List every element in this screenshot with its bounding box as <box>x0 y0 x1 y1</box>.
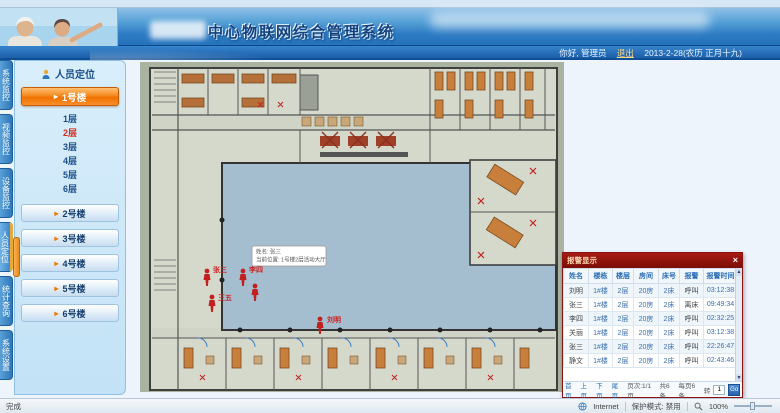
pager-next[interactable]: 下页 <box>596 380 609 400</box>
vtab-person-location[interactable]: 人员定位 <box>0 222 13 272</box>
table-row[interactable]: 李四1#楼2层20房2床呼叫02:32:25 <box>564 312 738 326</box>
page-title: 中心物联网综合管理系统 <box>208 21 395 42</box>
banner-highlight <box>430 12 710 28</box>
alarm-panel: 报警显示 × 姓名 楼栋 楼层 房间 床号 报警 报警时间 刘明1#楼2层20房… <box>562 252 743 398</box>
title-redacted-blur <box>150 21 206 39</box>
subbar-swoosh <box>90 46 310 60</box>
pager-first[interactable]: 首页 <box>565 380 578 400</box>
arrow-icon: ▸ <box>54 309 58 318</box>
floor-item-2-active[interactable]: 2层 <box>15 126 125 140</box>
pager-goto-label: 转 <box>704 385 711 395</box>
sidebar-panel: 人员定位 ▸ 1号楼 1层 2层 3层 4层 5层 6层 ▸2号楼 ▸3号楼 ▸… <box>14 60 126 395</box>
person-locate-icon <box>41 69 51 79</box>
table-row[interactable]: 静文1#楼2层20房2床呼叫02:43:46 <box>564 354 738 368</box>
table-row[interactable]: 关丽1#楼2层20房2床呼叫03:12:38 <box>564 326 738 340</box>
building-5-label: 5号楼 <box>63 282 86 295</box>
pager-last[interactable]: 尾页 <box>612 380 625 400</box>
col-building[interactable]: 楼栋 <box>589 269 613 284</box>
floor-item-1[interactable]: 1层 <box>15 112 125 126</box>
table-row[interactable]: 刘明1#楼2层20房2床呼叫03:12:38 <box>564 284 738 298</box>
scroll-up-icon[interactable]: ▲ <box>736 268 742 276</box>
building-5-button[interactable]: ▸5号楼 <box>21 279 119 297</box>
floor-list: 1层 2层 3层 4层 5层 6层 <box>15 112 125 196</box>
app-window: 中心物联网综合管理系统 你好, 管理员 退出 2013-2-28(农历 正月十九… <box>0 0 780 413</box>
arrow-icon: ▸ <box>54 259 58 268</box>
panel-title: 人员定位 <box>55 66 95 81</box>
elevator-block <box>300 75 318 110</box>
protected-mode-label: 保护模式: 禁用 <box>632 401 681 412</box>
greeting-text: 你好, 管理员 <box>559 48 606 58</box>
building-list: ▸2号楼 ▸3号楼 ▸4号楼 ▸5号楼 ▸6号楼 <box>15 204 125 322</box>
col-room[interactable]: 房间 <box>634 269 659 284</box>
arrow-icon: ▸ <box>54 284 58 293</box>
floor-item-6[interactable]: 6层 <box>15 182 125 196</box>
left-tab-strip: 系统监控 视频监控 设备监控 人员定位 统计查询 系统设置 <box>0 60 14 395</box>
table-pager: 首页 上页 下页 尾页 页次:1/1页 共6条 每页6条 转 Go <box>563 381 742 397</box>
building-2-label: 2号楼 <box>63 207 86 220</box>
building-6-label: 6号楼 <box>63 307 86 320</box>
alarm-panel-title: 报警显示 <box>567 255 597 266</box>
browser-chrome-strip <box>0 0 780 8</box>
user-info-line: 你好, 管理员 退出 2013-2-28(农历 正月十九) <box>551 47 742 59</box>
lobby-tables <box>302 117 363 126</box>
zoom-slider-knob[interactable] <box>750 402 755 410</box>
pager-prev[interactable]: 上页 <box>581 380 594 400</box>
floor-plan-svg[interactable]: 张三 李四 王五 <box>130 60 570 395</box>
vtab-device-monitor[interactable]: 设备监控 <box>0 168 13 218</box>
person-label: 刘明 <box>327 315 341 324</box>
floor-item-3[interactable]: 3层 <box>15 140 125 154</box>
person-tooltip: 姓名: 张三 当前位置: 1号楼2层活动大厅 <box>252 246 326 266</box>
floor-item-5[interactable]: 5层 <box>15 168 125 182</box>
person-label: 张三 <box>213 265 227 274</box>
separator <box>687 402 688 411</box>
separator <box>625 402 626 411</box>
sub-header-bar: 你好, 管理员 退出 2013-2-28(农历 正月十九) <box>0 46 780 60</box>
floor-item-4[interactable]: 4层 <box>15 154 125 168</box>
alarm-panel-header: 报警显示 × <box>563 253 742 268</box>
col-name[interactable]: 姓名 <box>564 269 589 284</box>
table-row[interactable]: 张三1#楼2层20房2床离床09:49:34 <box>564 298 738 312</box>
panel-header: 人员定位 <box>15 61 125 85</box>
pager-goto-input[interactable] <box>713 385 725 395</box>
vtab-settings[interactable]: 系统设置 <box>0 330 13 380</box>
building-2-button[interactable]: ▸2号楼 <box>21 204 119 222</box>
tooltip-line1: 姓名: 张三 <box>256 248 282 256</box>
arrow-icon: ▸ <box>54 92 58 101</box>
pager-total: 共6条 <box>659 380 675 400</box>
arrow-icon: ▸ <box>54 209 58 218</box>
col-bed[interactable]: 床号 <box>659 269 680 284</box>
building-6-button[interactable]: ▸6号楼 <box>21 304 119 322</box>
right-wing-rooms <box>470 160 556 265</box>
col-alarm[interactable]: 报警 <box>680 269 704 284</box>
globe-icon <box>578 402 587 411</box>
alarm-table: 姓名 楼栋 楼层 房间 床号 报警 报警时间 刘明1#楼2层20房2床呼叫03:… <box>563 268 738 368</box>
vtab-video-monitor[interactable]: 视频监控 <box>0 114 13 164</box>
floor-plan: 张三 李四 王五 <box>130 60 570 395</box>
header-banner: 中心物联网综合管理系统 <box>0 8 780 46</box>
alarm-table-header-row: 姓名 楼栋 楼层 房间 床号 报警 报警时间 <box>564 269 738 284</box>
tooltip-line2: 当前位置: 1号楼2层活动大厅 <box>256 256 326 264</box>
col-alarm-time[interactable]: 报警时间 <box>704 269 738 284</box>
status-text: 完成 <box>6 401 21 412</box>
sidebar-collapse-handle[interactable] <box>13 237 20 277</box>
table-scrollbar[interactable]: ▲ ▼ <box>735 268 742 382</box>
close-icon[interactable]: × <box>733 256 738 265</box>
building-3-button[interactable]: ▸3号楼 <box>21 229 119 247</box>
building-1-button[interactable]: ▸ 1号楼 <box>21 87 119 106</box>
building-4-label: 4号楼 <box>63 257 86 270</box>
magnifier-icon <box>694 402 703 411</box>
date-text: 2013-2-28(农历 正月十九) <box>644 48 742 58</box>
pager-per-page: 每页6条 <box>679 380 701 400</box>
status-bar: 完成 Internet 保护模式: 禁用 100% <box>0 398 780 413</box>
zoom-slider[interactable] <box>734 405 772 407</box>
vtab-system-monitor[interactable]: 系统监控 <box>0 60 13 110</box>
zone-label: Internet <box>593 402 618 411</box>
building-4-button[interactable]: ▸4号楼 <box>21 254 119 272</box>
col-floor[interactable]: 楼层 <box>613 269 634 284</box>
logout-link[interactable]: 退出 <box>617 48 634 58</box>
zoom-level[interactable]: 100% <box>709 402 728 411</box>
pager-info: 页次:1/1页 <box>627 380 656 400</box>
building-1-label: 1号楼 <box>62 90 86 104</box>
vtab-statistics[interactable]: 统计查询 <box>0 276 13 326</box>
table-row[interactable]: 张三1#楼2层20房2床呼叫22:26:47 <box>564 340 738 354</box>
person-label: 王五 <box>218 294 232 302</box>
building-3-label: 3号楼 <box>63 232 86 245</box>
pager-go-button[interactable]: Go <box>728 384 740 396</box>
arrow-icon: ▸ <box>54 234 58 243</box>
